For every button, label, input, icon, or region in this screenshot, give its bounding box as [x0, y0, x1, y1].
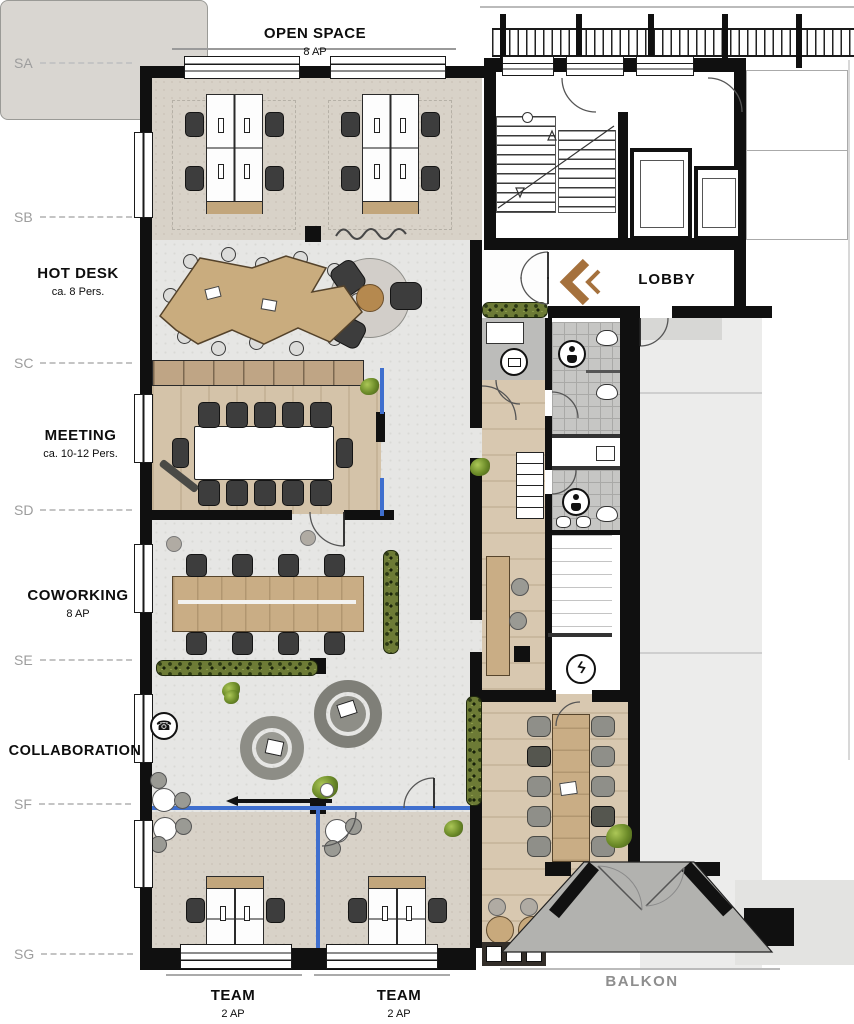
- stool: [249, 335, 264, 350]
- wall: [470, 458, 482, 620]
- wall-meeting-bottom: [344, 510, 394, 520]
- monitor: [218, 164, 224, 179]
- stool: [183, 254, 198, 269]
- wall: [545, 416, 552, 470]
- pod-table: [265, 738, 285, 756]
- collaboration-title: COLLABORATION: [9, 743, 142, 759]
- chair: [591, 746, 615, 767]
- monitor: [400, 118, 406, 133]
- open-space-subtitle: 8 AP: [212, 46, 418, 58]
- round-table: [152, 788, 176, 812]
- floor-neighbor-step: [640, 318, 722, 340]
- chair-round: [345, 818, 362, 835]
- lobby-title: LOBBY: [638, 271, 696, 288]
- chair: [226, 480, 248, 506]
- chair: [324, 632, 345, 655]
- shelf: [516, 507, 544, 519]
- zone-label-meeting: MEETING ca. 10-12 Pers.: [8, 428, 153, 460]
- copy-desk: [486, 322, 524, 344]
- hedge-planter: [466, 696, 482, 806]
- chair: [186, 632, 207, 655]
- chair: [265, 112, 284, 137]
- stool: [488, 898, 506, 916]
- chair: [341, 112, 360, 137]
- chair: [282, 402, 304, 428]
- wall-thin: [552, 434, 620, 438]
- elevator-car: [702, 178, 736, 228]
- grid-text: SF: [14, 796, 32, 812]
- stool: [221, 247, 236, 262]
- wall-lobby-bottom: [672, 306, 772, 318]
- zone-label-team-left: TEAM 2 AP: [170, 988, 296, 1020]
- toilet: [596, 384, 618, 400]
- monitor: [244, 906, 250, 921]
- grid-label-sf: SF: [14, 796, 131, 812]
- chair-round: [150, 772, 167, 789]
- neighbor-room-outline: [746, 70, 848, 152]
- grid-text: SD: [14, 502, 33, 518]
- chair-patterned: [591, 806, 615, 827]
- wc-person-body: [571, 503, 581, 511]
- window-sill: [166, 974, 302, 976]
- printer-glyph: [508, 358, 521, 367]
- team-left-subtitle: 2 AP: [170, 1008, 296, 1020]
- wall-core-right: [620, 318, 640, 690]
- monitor: [374, 118, 380, 133]
- wall-cafe-right: [628, 690, 640, 880]
- railing-post: [796, 14, 802, 68]
- chair: [186, 554, 207, 577]
- plant: [360, 378, 379, 395]
- chair: [527, 806, 551, 827]
- window: [636, 56, 694, 76]
- grid-label-sc: SC: [14, 355, 132, 371]
- side-table: [166, 536, 182, 552]
- monitor: [244, 164, 250, 179]
- monitor: [218, 118, 224, 133]
- wc-person-body: [567, 355, 577, 363]
- chair: [527, 836, 551, 857]
- hot-desk-title: HOT DESK: [37, 265, 119, 282]
- stool: [289, 341, 304, 356]
- window: [180, 944, 292, 969]
- elevator-car: [640, 160, 684, 228]
- chair: [348, 898, 367, 923]
- chair: [232, 554, 253, 577]
- desk-cluster: [206, 94, 263, 202]
- electrical-icon: ϟ: [566, 654, 596, 684]
- coworking-title: COWORKING: [27, 587, 128, 604]
- paper: [559, 781, 578, 796]
- glass-wall-meeting: [380, 368, 384, 414]
- grid-line: [41, 953, 133, 955]
- chair: [185, 166, 204, 191]
- chair: [421, 112, 440, 137]
- chair: [310, 480, 332, 506]
- chair: [591, 716, 615, 737]
- window: [566, 56, 624, 76]
- wc-men-icon: [562, 488, 590, 516]
- kitchen-unit: [506, 946, 522, 962]
- kitchen-unit: [486, 946, 502, 962]
- balkon-title: BALKON: [605, 973, 678, 990]
- bar-stool: [509, 612, 527, 630]
- planter-pot: [320, 783, 334, 797]
- team-right-subtitle: 2 AP: [336, 1008, 462, 1020]
- sliding-door: [236, 799, 332, 803]
- bar-stool: [511, 578, 529, 596]
- zone-label-coworking: COWORKING 8 AP: [4, 588, 152, 620]
- window: [330, 56, 446, 79]
- wall: [734, 238, 746, 318]
- grid-text: SG: [14, 946, 34, 962]
- neighbor-divider: [640, 392, 762, 394]
- chair: [527, 716, 551, 737]
- side-table: [300, 530, 316, 546]
- urinal: [576, 516, 591, 528]
- stool: [520, 898, 538, 916]
- team-desk: [206, 888, 264, 950]
- window: [184, 56, 300, 79]
- door-arc: [562, 78, 596, 112]
- window: [134, 820, 153, 888]
- neighbor-room-outline: [746, 150, 848, 240]
- chair: [336, 438, 353, 468]
- chair: [278, 554, 299, 577]
- meeting-subtitle: ca. 10-12 Pers.: [8, 448, 153, 460]
- wc-women-icon: [558, 340, 586, 368]
- grid-text: SC: [14, 355, 33, 371]
- railing-post: [722, 14, 728, 68]
- grid-line: [40, 216, 132, 218]
- chair-round: [324, 840, 341, 857]
- grid-label-sd: SD: [14, 502, 132, 518]
- zone-label-team-right: TEAM 2 AP: [336, 988, 462, 1020]
- chair: [186, 898, 205, 923]
- grid-line: [40, 362, 132, 364]
- grid-line: [40, 659, 132, 661]
- chair: [278, 632, 299, 655]
- window: [134, 132, 153, 218]
- wall: [545, 318, 552, 390]
- glass-divider-team: [316, 810, 320, 948]
- chair: [341, 166, 360, 191]
- chair: [265, 166, 284, 191]
- stair-start-circle: [522, 112, 533, 123]
- stool: [211, 341, 226, 356]
- chair: [421, 166, 440, 191]
- lightning-glyph: ϟ: [575, 659, 587, 678]
- wall-stub: [545, 862, 571, 876]
- chair: [324, 554, 345, 577]
- monitor: [220, 906, 226, 921]
- stool: [163, 288, 178, 303]
- column: [305, 226, 321, 242]
- stool: [255, 257, 270, 272]
- wall-thin: [552, 466, 620, 470]
- monitor: [382, 906, 388, 921]
- desk-base: [206, 200, 263, 214]
- hedge-planter: [482, 302, 548, 318]
- stairs-flight: [558, 130, 616, 213]
- window: [326, 944, 438, 969]
- wall-lobby-bottom: [548, 306, 640, 318]
- stall-wall: [586, 370, 620, 373]
- glass-wall-meeting: [380, 478, 384, 516]
- chair: [527, 776, 551, 797]
- cafe-round-table: [486, 916, 514, 944]
- monitor: [244, 118, 250, 133]
- plant: [444, 820, 463, 837]
- chair: [310, 402, 332, 428]
- grid-label-sb: SB: [14, 209, 132, 225]
- grid-line: [40, 62, 132, 64]
- grid-label-sg: SG: [14, 946, 133, 962]
- zone-label-collaboration: COLLABORATION: [0, 744, 150, 760]
- chair: [591, 776, 615, 797]
- neighbor-divider: [640, 652, 762, 654]
- monitor: [400, 164, 406, 179]
- balcony-sill: [500, 968, 780, 970]
- grid-text: SB: [14, 209, 33, 225]
- glass-partition-team: [152, 806, 470, 810]
- chair: [232, 632, 253, 655]
- coworking-subtitle: 8 AP: [4, 608, 152, 620]
- coworking-table: [172, 576, 364, 632]
- chair: [282, 480, 304, 506]
- stool: [293, 251, 308, 266]
- wc-person-head: [573, 494, 579, 500]
- chair-round: [175, 818, 192, 835]
- stairs-flight: [496, 116, 556, 213]
- meeting-table: [194, 426, 334, 480]
- floor-plan-canvas: ☎ ϟ: [0, 0, 854, 1024]
- coworking-table-channel: [178, 600, 356, 604]
- pod-table: [356, 284, 384, 312]
- phone-glyph: ☎: [156, 718, 172, 734]
- zone-label-open-space: OPEN SPACE 8 AP: [212, 26, 418, 58]
- chair: [185, 112, 204, 137]
- facade-line: [848, 60, 850, 760]
- grid-text: SA: [14, 55, 33, 71]
- roof-line: [480, 6, 854, 8]
- wall-thin: [548, 633, 612, 637]
- wall-thin: [552, 530, 620, 535]
- chair: [198, 480, 220, 506]
- grid-text: SE: [14, 652, 33, 668]
- chair: [266, 898, 285, 923]
- grid-line: [40, 509, 132, 511]
- wall: [545, 494, 552, 698]
- wall: [470, 318, 482, 428]
- wall: [484, 58, 496, 250]
- toilet: [596, 330, 618, 346]
- wall-stub: [688, 862, 720, 876]
- window-sill: [314, 974, 450, 976]
- column: [514, 646, 530, 662]
- kitchen-unit: [526, 946, 542, 962]
- sink: [596, 446, 615, 461]
- wall-cafe-top: [470, 690, 556, 702]
- desk-base: [362, 200, 419, 214]
- wall-stub: [376, 412, 385, 442]
- chair: [198, 402, 220, 428]
- stool: [177, 329, 192, 344]
- window: [502, 56, 554, 76]
- chair: [254, 480, 276, 506]
- wardrobe-cabinets: [152, 360, 364, 386]
- wall-meeting-bottom: [152, 510, 292, 520]
- cafe-round-table: [518, 916, 546, 944]
- phone-booth-icon: ☎: [150, 712, 178, 740]
- zone-label-lobby: LOBBY: [612, 272, 722, 289]
- chair: [428, 898, 447, 923]
- zone-label-balkon: BALKON: [582, 974, 702, 991]
- desk-cluster: [362, 94, 419, 202]
- meeting-title: MEETING: [45, 427, 117, 444]
- chair-patterned: [527, 746, 551, 767]
- open-space-title: OPEN SPACE: [264, 25, 366, 42]
- armchair: [390, 282, 422, 310]
- grid-label-sa: SA: [14, 55, 132, 71]
- chair-round: [174, 792, 191, 809]
- wall-corner: [744, 908, 794, 946]
- bar-counter: [486, 556, 510, 676]
- hedge-planter: [383, 550, 399, 654]
- wall-stair-right: [618, 112, 628, 238]
- grid-label-se: SE: [14, 652, 132, 668]
- wc-person-head: [569, 346, 575, 352]
- floor-storage: [548, 535, 612, 635]
- printer-icon: [500, 348, 528, 376]
- monitor: [374, 164, 380, 179]
- team-left-title: TEAM: [211, 987, 256, 1004]
- team-desk: [368, 888, 426, 950]
- hedge-planter: [156, 660, 318, 676]
- monitor: [406, 906, 412, 921]
- grid-line: [39, 803, 131, 805]
- hot-desk-subtitle: ca. 8 Pers.: [8, 286, 148, 298]
- chair: [254, 402, 276, 428]
- team-right-title: TEAM: [377, 987, 422, 1004]
- chair: [172, 438, 189, 468]
- wall: [470, 240, 482, 318]
- zone-label-hot-desk: HOT DESK ca. 8 Pers.: [8, 266, 148, 298]
- urinal: [556, 516, 571, 528]
- toilet: [596, 506, 618, 522]
- chair: [226, 402, 248, 428]
